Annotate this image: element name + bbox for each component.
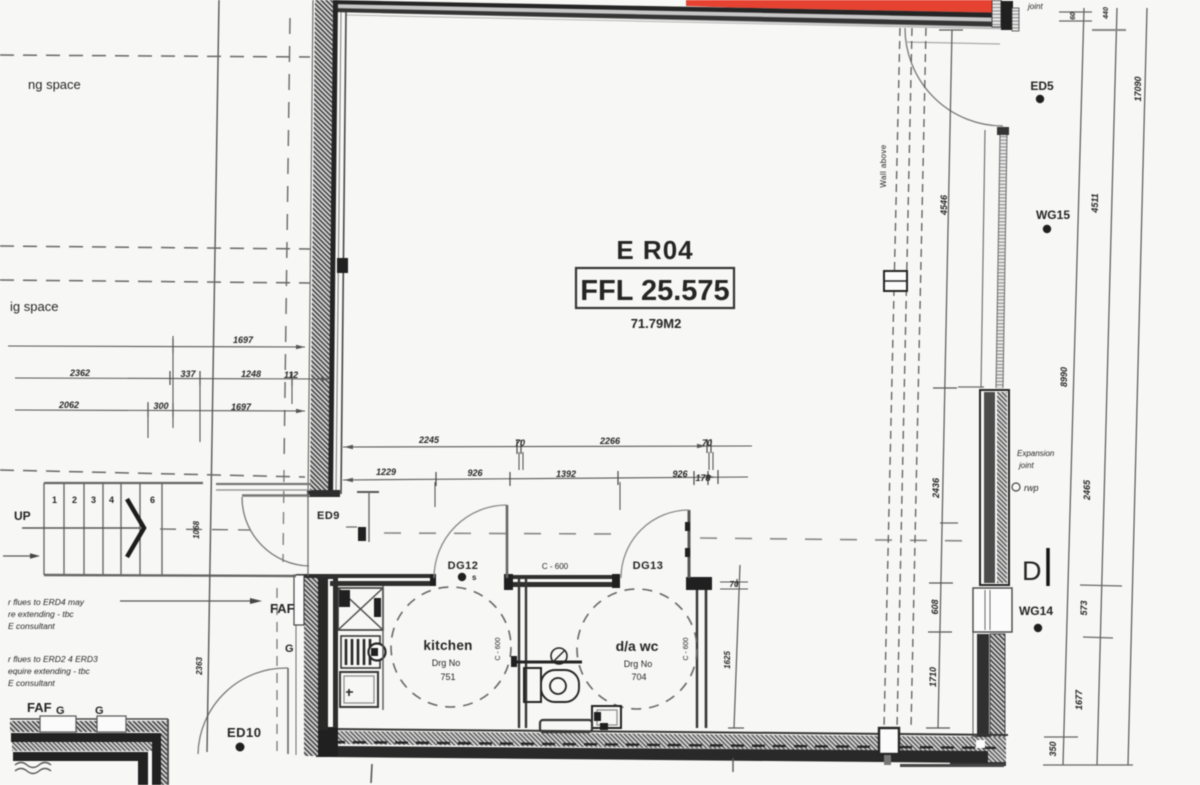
svg-text:4546: 4546	[939, 194, 949, 216]
svg-text:926: 926	[467, 468, 483, 478]
svg-text:2245: 2245	[418, 435, 440, 445]
svg-text:G: G	[56, 705, 65, 717]
svg-text:6: 6	[150, 495, 155, 505]
svg-text:4511: 4511	[1090, 193, 1100, 213]
svg-text:350: 350	[1048, 741, 1058, 756]
svg-text:d/a wc: d/a wc	[616, 638, 659, 654]
svg-text:Expansion: Expansion	[1017, 449, 1055, 458]
svg-text:r flues to ERD4 may: r flues to ERD4 may	[8, 597, 85, 607]
svg-text:C - 600: C - 600	[495, 637, 502, 660]
svg-text:ng space: ng space	[28, 77, 81, 92]
svg-text:178: 178	[695, 473, 710, 483]
svg-text:1697: 1697	[231, 402, 252, 412]
svg-text:608: 608	[930, 599, 940, 614]
svg-text:1392: 1392	[556, 469, 576, 479]
svg-text:DG12: DG12	[448, 560, 479, 572]
svg-text:70: 70	[702, 438, 712, 448]
svg-text:1: 1	[52, 495, 57, 505]
svg-text:751: 751	[440, 672, 455, 682]
svg-text:C - 600: C - 600	[542, 562, 569, 571]
svg-text:2465: 2465	[1082, 479, 1092, 501]
svg-text:71.79M2: 71.79M2	[631, 316, 682, 331]
svg-text:re extending - tbc: re extending - tbc	[8, 609, 74, 619]
svg-text:2062: 2062	[58, 400, 79, 410]
svg-text:E consultant: E consultant	[8, 621, 55, 631]
svg-text:1248: 1248	[241, 369, 261, 379]
svg-text:ED9: ED9	[317, 510, 340, 522]
svg-text:1625: 1625	[723, 651, 732, 669]
svg-text:D: D	[1022, 556, 1042, 586]
svg-text:3: 3	[91, 495, 96, 505]
svg-text:112: 112	[284, 370, 298, 380]
svg-text:FAF: FAF	[270, 601, 295, 616]
svg-text:70: 70	[515, 438, 525, 448]
svg-text:kitchen: kitchen	[423, 638, 472, 653]
svg-text:ED5: ED5	[1030, 79, 1054, 93]
svg-text:Drg No: Drg No	[624, 659, 653, 669]
svg-text:1697: 1697	[233, 335, 254, 345]
svg-text:1710: 1710	[928, 667, 938, 687]
svg-text:ED10: ED10	[227, 725, 262, 740]
svg-text:rwp: rwp	[1024, 483, 1039, 493]
svg-text:Drg No: Drg No	[432, 658, 461, 668]
svg-text:70: 70	[730, 580, 739, 589]
svg-text:1229: 1229	[376, 467, 396, 477]
svg-text:FAF: FAF	[27, 700, 52, 715]
svg-text:2: 2	[72, 495, 77, 505]
svg-text:joint: joint	[1018, 461, 1034, 470]
svg-text:equire extending - tbc: equire extending - tbc	[8, 666, 90, 676]
svg-text:2362: 2362	[69, 368, 90, 378]
svg-text:G: G	[95, 705, 104, 717]
svg-text:704: 704	[631, 672, 646, 682]
svg-text:60: 60	[1070, 12, 1077, 20]
svg-text:573: 573	[1079, 600, 1089, 615]
svg-text:2266: 2266	[599, 436, 621, 446]
svg-text:WG15: WG15	[1036, 208, 1070, 222]
svg-text:FFL 25.575: FFL 25.575	[580, 275, 729, 307]
svg-text:8990: 8990	[1059, 367, 1069, 387]
svg-text:2363: 2363	[195, 657, 204, 676]
svg-text:1068: 1068	[192, 521, 201, 539]
svg-text:C - 600: C - 600	[683, 637, 690, 660]
svg-text:s: s	[472, 573, 477, 582]
svg-text:2436: 2436	[931, 477, 941, 499]
svg-text:440: 440	[1103, 7, 1110, 20]
svg-text:ig space: ig space	[10, 299, 58, 314]
svg-text:WG14: WG14	[1019, 604, 1053, 618]
svg-text:DG13: DG13	[633, 560, 664, 572]
svg-text:17090: 17090	[1133, 76, 1143, 101]
svg-text:E consultant: E consultant	[8, 678, 55, 688]
svg-text:926: 926	[672, 469, 688, 479]
svg-text:337: 337	[180, 369, 196, 379]
svg-text:joint: joint	[1027, 2, 1043, 11]
svg-text:1677: 1677	[1074, 689, 1084, 710]
svg-text:G: G	[285, 643, 294, 655]
svg-text:4: 4	[109, 495, 114, 505]
svg-text:UP: UP	[14, 509, 31, 523]
svg-text:Wall above: Wall above	[879, 144, 888, 187]
svg-text:300: 300	[153, 401, 168, 411]
svg-text:r flues to ERD2 4 ERD3: r flues to ERD2 4 ERD3	[8, 654, 98, 664]
svg-text:E R04: E R04	[616, 235, 693, 265]
